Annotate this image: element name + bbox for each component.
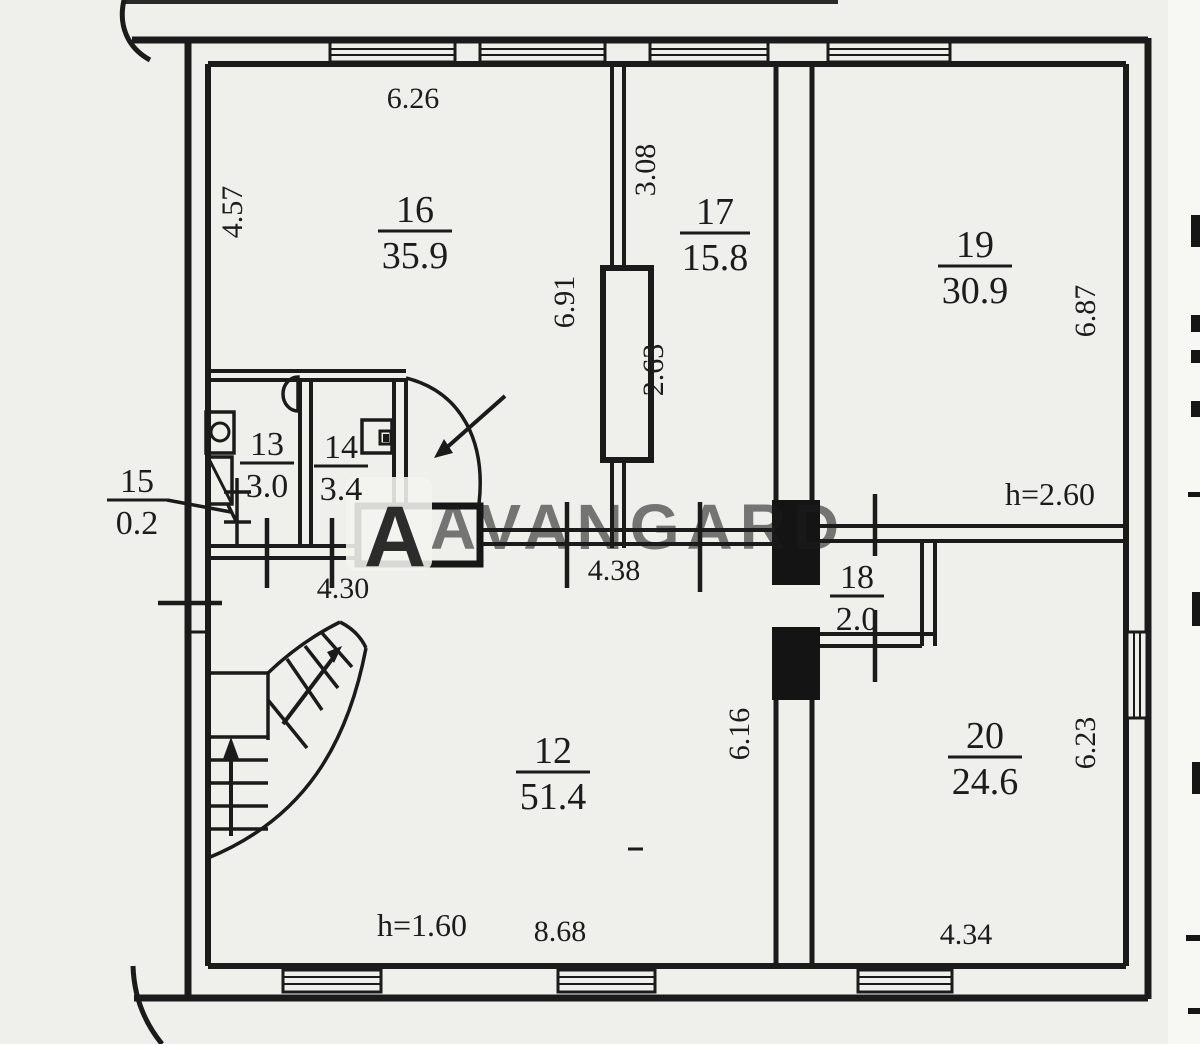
window-icon bbox=[330, 42, 455, 62]
dim-room12-width: 8.68 bbox=[534, 915, 587, 948]
dim-room19-ceiling-height: h=2.60 bbox=[1005, 476, 1095, 512]
dim-room12-right-depth: 6.16 bbox=[723, 708, 756, 761]
watermark-text: AVANGARD bbox=[430, 491, 846, 563]
room-area: 3.0 bbox=[246, 468, 289, 505]
staircase bbox=[208, 622, 366, 858]
window-icon bbox=[283, 970, 381, 992]
page-curl-top-left bbox=[122, 0, 150, 60]
window-icon bbox=[558, 970, 655, 992]
stairs-up-arrow-icon bbox=[223, 737, 239, 836]
room-area: 0.2 bbox=[116, 505, 159, 542]
room-number: 12 bbox=[534, 730, 572, 772]
room-label-18: 18 2.0 bbox=[830, 559, 884, 638]
dim-room20-width: 4.34 bbox=[940, 918, 993, 951]
room-number: 14 bbox=[324, 429, 358, 466]
room-number: 16 bbox=[396, 189, 434, 231]
dim-room16-width: 6.26 bbox=[387, 82, 440, 115]
scanned-floor-plan-page: AVANGARD A 16 35.9 17 15.8 19 30.9 12 51… bbox=[0, 0, 1200, 1044]
dim-room19-depth: 6.87 bbox=[1069, 285, 1102, 338]
room-label-17: 17 15.8 bbox=[680, 191, 750, 279]
room-number: 17 bbox=[696, 191, 734, 233]
room-label-14: 14 3.4 bbox=[314, 429, 368, 508]
room-area: 35.9 bbox=[382, 235, 449, 277]
floor-plan-canvas: AVANGARD A 16 35.9 17 15.8 19 30.9 12 51… bbox=[0, 0, 1200, 1044]
dim-room16-depth: 4.57 bbox=[216, 186, 249, 239]
room-label-16: 16 35.9 bbox=[378, 189, 452, 277]
dim-flue-height: 2.63 bbox=[637, 344, 670, 397]
room-area: 51.4 bbox=[520, 776, 587, 818]
room-area: 3.4 bbox=[320, 471, 363, 508]
room-area: 24.6 bbox=[952, 761, 1019, 803]
dim-corridor-left: 4.30 bbox=[317, 572, 370, 605]
dim-wall-16-17-full: 6.91 bbox=[548, 276, 581, 329]
wall-pier bbox=[772, 627, 820, 700]
dim-wall-16-17-upper: 3.08 bbox=[629, 144, 662, 197]
window-icon bbox=[828, 42, 950, 62]
window-icon bbox=[480, 42, 605, 62]
room-label-15: 15 0.2 bbox=[107, 463, 167, 542]
window-right-wall bbox=[1127, 632, 1147, 718]
room-number: 20 bbox=[966, 715, 1004, 757]
sink-icon bbox=[283, 377, 298, 411]
room-number: 18 bbox=[840, 559, 874, 596]
dim-room12-ceiling-height: h=1.60 bbox=[377, 907, 467, 943]
windows-bottom-wall bbox=[283, 970, 952, 992]
dim-room20-depth: 6.23 bbox=[1069, 717, 1102, 770]
window-icon bbox=[650, 42, 768, 62]
window-icon bbox=[858, 970, 952, 992]
windows-top-wall bbox=[330, 42, 950, 62]
watermark-logo-letter: A bbox=[364, 489, 426, 585]
room-number: 15 bbox=[120, 463, 154, 500]
dim-corridor-right: 4.38 bbox=[588, 554, 641, 587]
page-curl-bottom-left bbox=[133, 966, 162, 1044]
room-area: 2.0 bbox=[836, 601, 879, 638]
entry-arrow-icon bbox=[434, 396, 505, 458]
room-number: 19 bbox=[956, 224, 994, 266]
room-label-20: 20 24.6 bbox=[948, 715, 1022, 803]
room-label-13: 13 3.0 bbox=[240, 426, 294, 505]
room-number: 13 bbox=[250, 426, 284, 463]
room-area: 30.9 bbox=[942, 270, 1009, 312]
water-heater-icon bbox=[362, 420, 392, 453]
room-label-19: 19 30.9 bbox=[938, 224, 1012, 312]
room-area: 15.8 bbox=[682, 237, 749, 279]
room-label-12: 12 51.4 bbox=[516, 730, 590, 818]
